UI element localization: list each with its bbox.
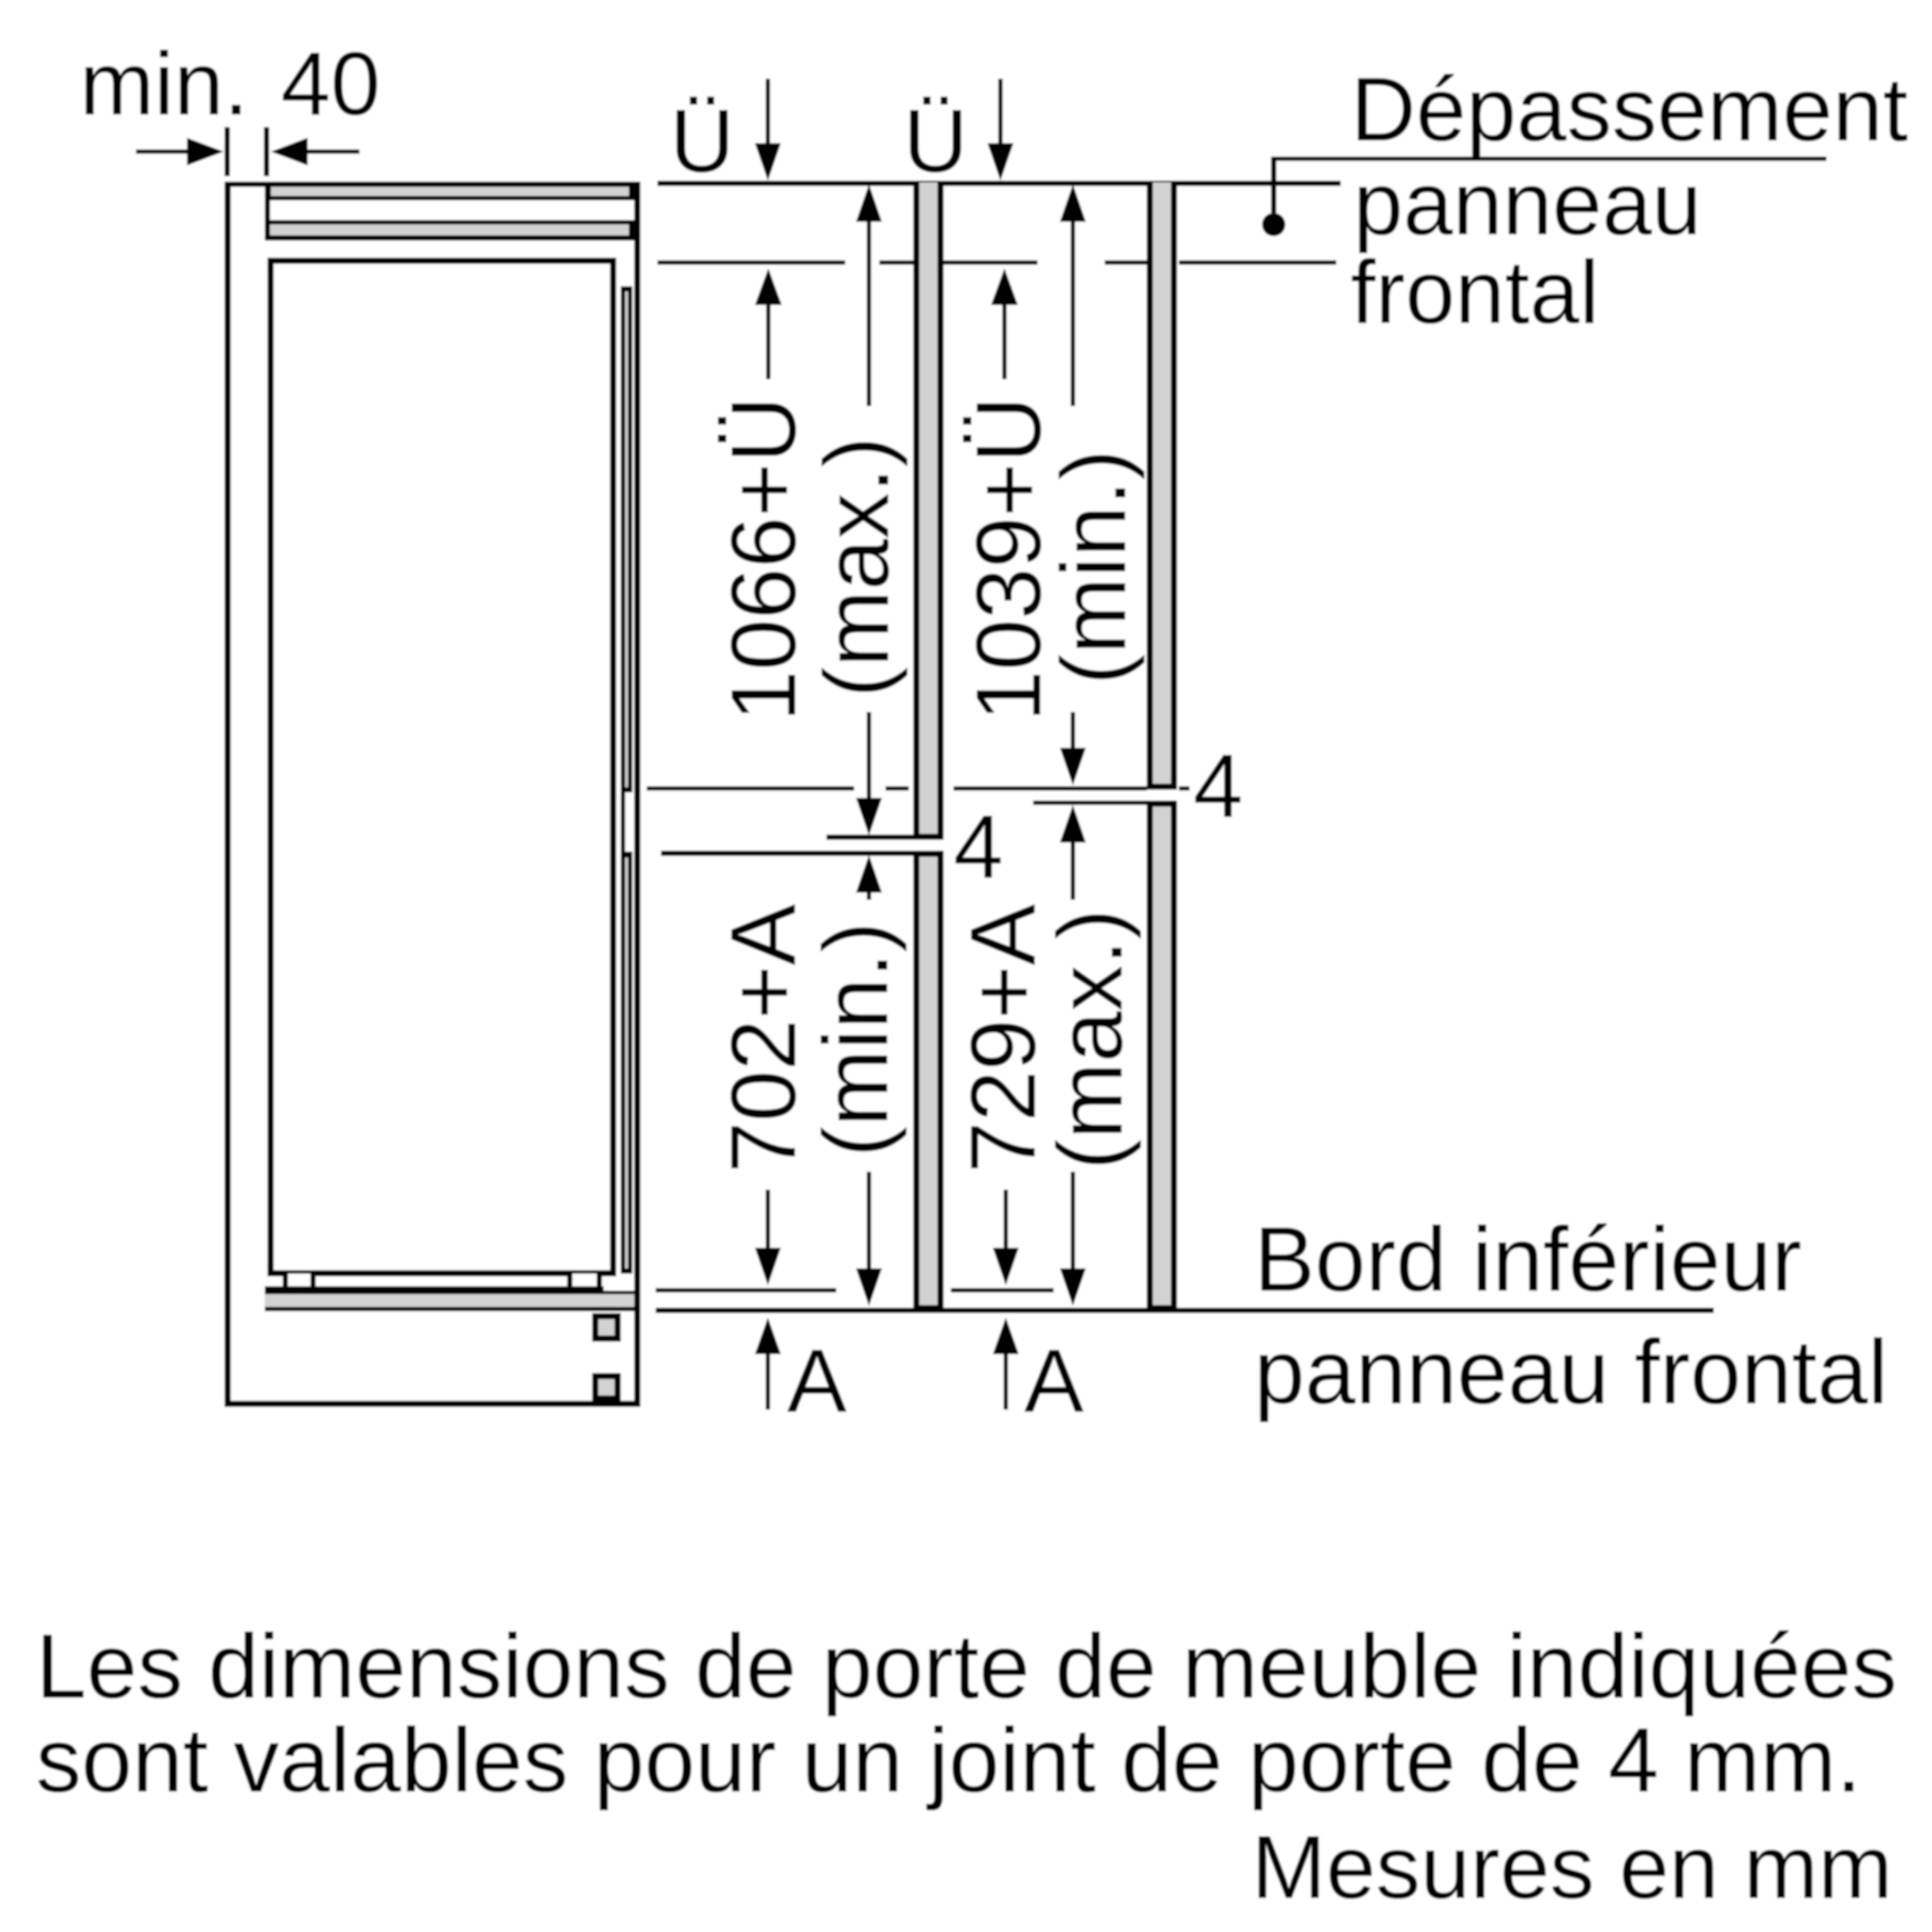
svg-text:(max.): (max.) <box>1038 909 1141 1170</box>
svg-text:A: A <box>1024 1331 1084 1431</box>
svg-text:Les dimensions de porte de meu: Les dimensions de porte de meuble indiqu… <box>36 1615 1897 1717</box>
svg-text:(min.): (min.) <box>1042 449 1145 684</box>
svg-text:Dépassement: Dépassement <box>1351 60 1908 160</box>
svg-text:min.: min. <box>80 34 249 134</box>
svg-text:4: 4 <box>1193 736 1243 836</box>
svg-text:1066+Ü: 1066+Ü <box>712 396 815 722</box>
svg-text:4: 4 <box>953 797 1004 897</box>
svg-text:panneau: panneau <box>1353 154 1701 254</box>
svg-text:Ü: Ü <box>670 91 734 191</box>
svg-text:(max.): (max.) <box>805 436 908 698</box>
svg-text:702+A: 702+A <box>712 903 815 1173</box>
svg-text:frontal: frontal <box>1351 242 1599 343</box>
svg-text:Ü: Ü <box>903 91 968 191</box>
svg-text:Mesures en mm: Mesures en mm <box>1251 1818 1893 1918</box>
svg-text:A: A <box>787 1331 847 1431</box>
svg-text:(min.): (min.) <box>804 921 907 1157</box>
svg-text:Bord inférieur: Bord inférieur <box>1254 1208 1801 1310</box>
svg-text:40: 40 <box>281 34 380 134</box>
svg-text:sont valables pour un joint de: sont valables pour un joint de porte de … <box>36 1709 1861 1811</box>
svg-text:panneau frontal: panneau frontal <box>1254 1321 1888 1423</box>
